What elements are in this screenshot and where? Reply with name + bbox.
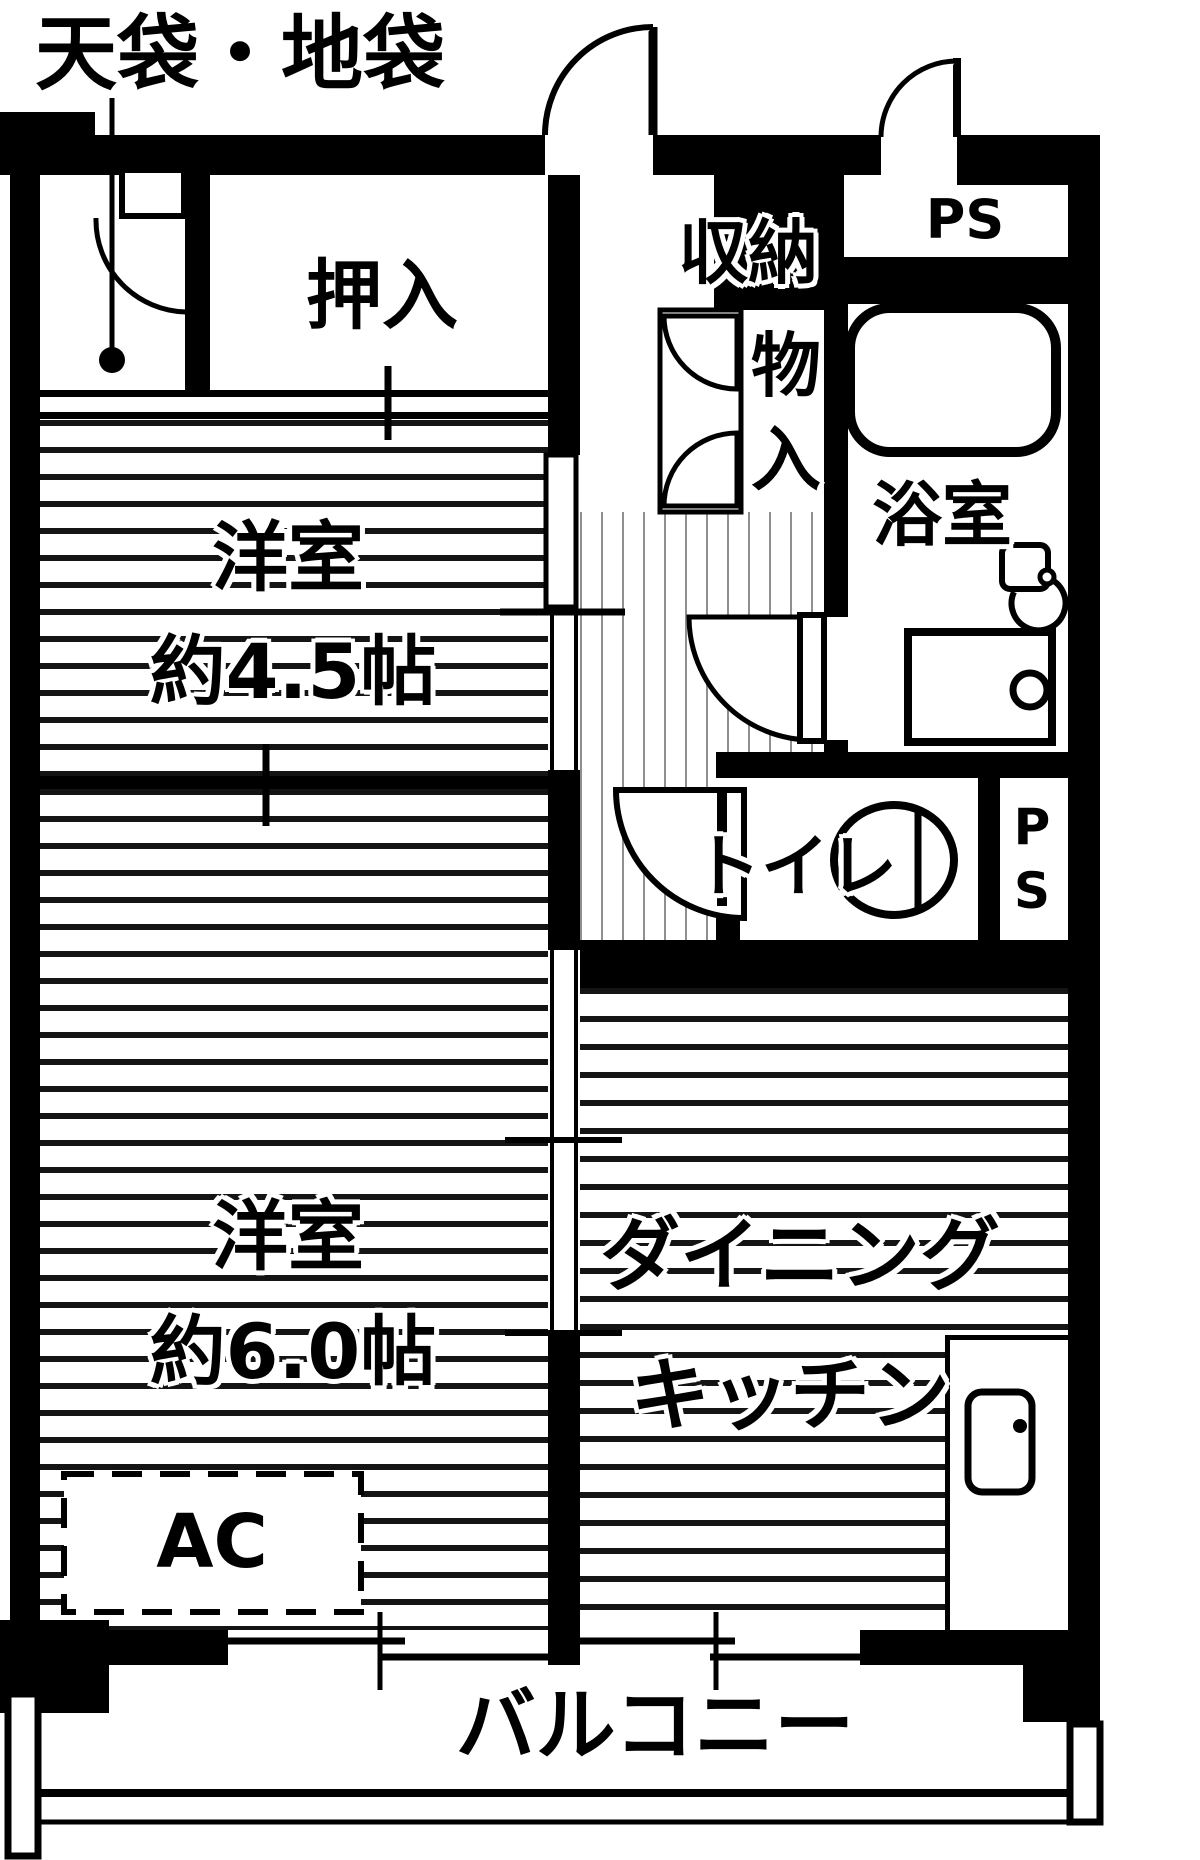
label-ac: AC <box>156 1505 268 1579</box>
label-western2-name: 洋室 <box>212 1199 364 1275</box>
leader-dot <box>99 347 125 373</box>
bath-door-arc-icon <box>689 617 812 740</box>
bathtub-icon <box>850 308 1056 452</box>
kitchen-door-icon <box>968 1392 1032 1492</box>
sliding-door-4-5 <box>500 455 625 770</box>
label-oshiire: 押入 <box>306 258 458 334</box>
washing-machine-icon <box>908 632 1052 742</box>
label-bath: 浴室 <box>872 480 1012 550</box>
label-western1-size: 約4.5帖 <box>150 634 437 710</box>
closet-door-panel <box>122 170 184 216</box>
entrance-door-arc-icon <box>545 27 653 135</box>
label-toilet: トイレ <box>693 834 897 902</box>
label-ps-side: PS <box>1007 798 1057 926</box>
bath-door-leaf <box>800 615 824 741</box>
floor-plan: 天袋・地袋 押入 収納 物 入 PS 浴室 トイレ PS 洋室 約4.5帖 洋室… <box>0 0 1200 1860</box>
closet-door-arc-icon <box>96 218 186 312</box>
label-western1-name: 洋室 <box>212 520 364 596</box>
faucet-icon <box>1002 545 1066 630</box>
label-dk-1: ダイニング <box>600 1216 1000 1296</box>
label-storage-1: 収納 <box>678 218 818 288</box>
label-storage-3: 入 <box>751 425 821 495</box>
label-western2-size: 約6.0帖 <box>150 1314 437 1390</box>
label-balcony: バルコニー <box>456 1686 854 1766</box>
meter-door-arc-icon <box>881 61 957 137</box>
annotation-label: 天袋・地袋 <box>35 14 445 96</box>
label-storage-2: 物 <box>751 331 821 401</box>
label-dk-2: キッチン <box>630 1356 950 1436</box>
label-ps-top: PS <box>926 193 1004 247</box>
